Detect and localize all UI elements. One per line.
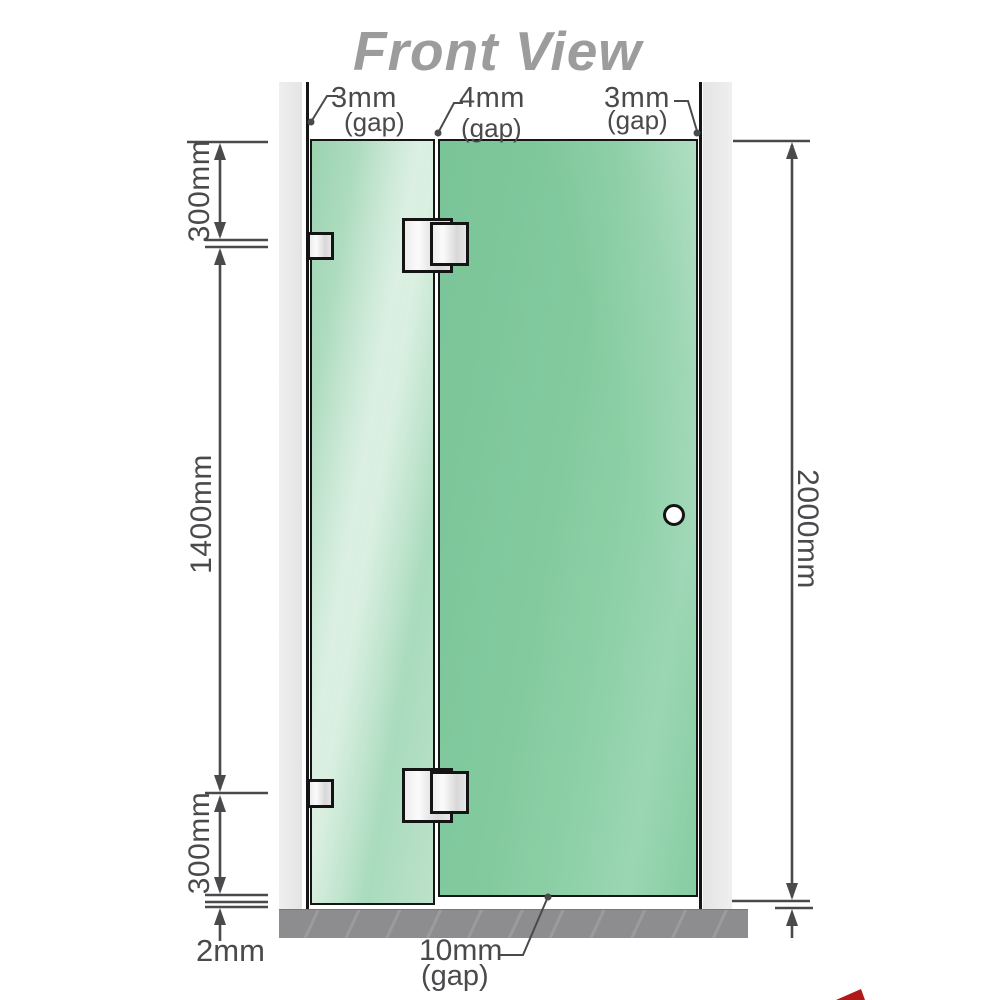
gap-label-top-middle-suffix: (gap) bbox=[461, 115, 522, 141]
red-corner-mark bbox=[836, 989, 865, 1000]
floor-base bbox=[279, 909, 748, 938]
door-knob bbox=[663, 504, 685, 526]
dim-label-top-300mm: 300mm bbox=[185, 140, 215, 243]
right-wall-inner-edge bbox=[699, 82, 702, 909]
wall-bracket-bottom bbox=[307, 779, 334, 808]
gap-label-top-middle-value: 4mm bbox=[459, 84, 525, 113]
front-view-diagram: Front View bbox=[0, 0, 1000, 1000]
wall-bracket-top bbox=[307, 232, 334, 260]
left-wall bbox=[279, 82, 302, 909]
dim-label-bottom-300mm: 300mm bbox=[185, 792, 215, 895]
gap-label-top-left-suffix: (gap) bbox=[344, 109, 405, 135]
right-wall bbox=[703, 82, 732, 909]
gap-label-top-right-suffix: (gap) bbox=[607, 107, 668, 133]
dim-label-height-2000mm: 2000mm bbox=[792, 469, 822, 589]
gap-label-bottom-suffix: (gap) bbox=[421, 962, 489, 991]
bottom-hinge-right-plate bbox=[430, 771, 469, 814]
dim-label-floor-clearance: 2mm bbox=[196, 935, 265, 966]
diagram-title: Front View bbox=[353, 24, 642, 79]
dim-label-middle-1400mm: 1400mm bbox=[187, 454, 217, 574]
top-hinge-right-plate bbox=[430, 222, 469, 266]
glass-door-panel bbox=[438, 139, 698, 897]
